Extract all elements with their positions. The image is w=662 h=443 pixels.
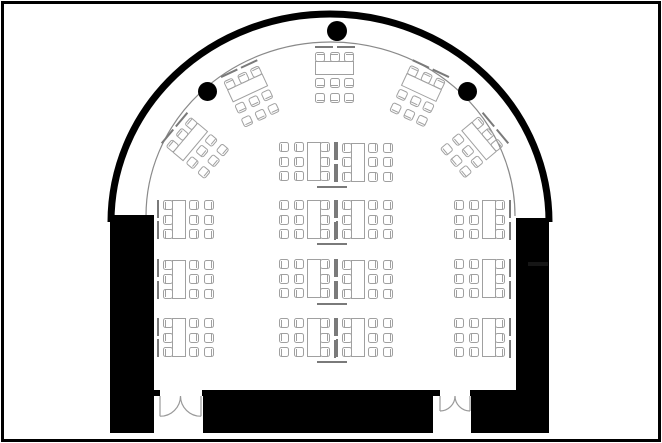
door-jamb: [202, 390, 210, 396]
divider-screen: [336, 318, 338, 336]
chair: [189, 200, 199, 210]
chair: [295, 274, 305, 284]
chair: [163, 215, 173, 225]
chair: [295, 289, 305, 299]
chair: [383, 172, 393, 182]
door-jamb: [470, 390, 478, 396]
chair: [368, 200, 378, 210]
chair: [279, 289, 289, 299]
workstation: [157, 318, 215, 358]
structural-column: [327, 21, 347, 41]
workstation: [315, 46, 355, 104]
divider-screen: [509, 222, 511, 240]
chair: [279, 260, 289, 270]
chair: [342, 347, 352, 357]
chair: [496, 229, 506, 239]
chair: [279, 318, 289, 328]
divider-screen: [509, 281, 511, 299]
chair: [279, 215, 289, 225]
chair: [342, 274, 352, 284]
chair: [295, 333, 305, 343]
chair: [279, 172, 289, 182]
floor-plan-canvas: [0, 0, 662, 443]
chair: [454, 318, 464, 328]
chair: [368, 289, 378, 299]
chair: [342, 215, 352, 225]
chair: [321, 318, 331, 328]
chair: [204, 347, 214, 357]
chair: [204, 229, 214, 239]
chair: [389, 102, 402, 115]
chair: [295, 143, 305, 153]
chair: [330, 52, 340, 62]
chair: [470, 289, 480, 299]
divider-screen: [336, 142, 338, 160]
divider-screen: [157, 281, 159, 299]
chair: [321, 260, 331, 270]
chair: [368, 260, 378, 270]
wall-recess-dash: [528, 262, 548, 266]
chair: [295, 318, 305, 328]
chair: [383, 200, 393, 210]
divider-screen: [157, 221, 159, 239]
chair: [295, 215, 305, 225]
chair: [321, 289, 331, 299]
chair: [383, 229, 393, 239]
chair: [345, 78, 355, 88]
chair: [189, 260, 199, 270]
chair: [204, 274, 214, 284]
chair: [204, 289, 214, 299]
workstation: [336, 200, 394, 240]
chair: [316, 52, 326, 62]
chair: [316, 93, 326, 103]
chair: [496, 333, 506, 343]
table: [351, 260, 365, 299]
chair: [368, 333, 378, 343]
table: [308, 260, 322, 299]
divider-screen: [157, 339, 159, 357]
chair: [204, 318, 214, 328]
chair: [496, 260, 506, 270]
chair: [345, 93, 355, 103]
floor-marker-line: [317, 361, 347, 363]
chair: [454, 260, 464, 270]
workstation: [157, 200, 215, 240]
chair: [342, 289, 352, 299]
workstation: [453, 259, 511, 299]
divider-screen: [336, 259, 338, 277]
chair: [321, 215, 331, 225]
left-wall: [110, 215, 154, 433]
chair: [454, 229, 464, 239]
chair: [279, 333, 289, 343]
chair: [279, 347, 289, 357]
divider-screen: [157, 259, 159, 277]
chair: [409, 94, 422, 107]
chair: [163, 318, 173, 328]
table: [308, 200, 322, 239]
chair: [189, 333, 199, 343]
divider-screen: [336, 200, 338, 218]
chair: [496, 274, 506, 284]
chair: [403, 108, 416, 121]
table: [172, 200, 186, 239]
chair: [470, 274, 480, 284]
chair: [342, 172, 352, 182]
workstation: [336, 259, 394, 299]
table: [351, 318, 365, 357]
chair: [330, 93, 340, 103]
divider-screen: [316, 46, 334, 48]
chair: [454, 200, 464, 210]
divider-screen: [509, 318, 511, 336]
chair: [383, 318, 393, 328]
chair: [316, 78, 326, 88]
chair: [204, 260, 214, 270]
door-jamb: [432, 390, 440, 396]
chair: [295, 200, 305, 210]
floor-marker-line: [317, 243, 347, 245]
chair: [345, 52, 355, 62]
chair: [383, 215, 393, 225]
divider-screen: [509, 340, 511, 358]
chair: [383, 157, 393, 167]
divider-screen: [509, 260, 511, 278]
divider-screen: [336, 221, 338, 239]
chair: [189, 215, 199, 225]
chair: [189, 229, 199, 239]
chair: [189, 274, 199, 284]
chair: [279, 274, 289, 284]
chair: [189, 347, 199, 357]
chair: [321, 157, 331, 167]
table: [483, 260, 497, 299]
chair: [295, 157, 305, 167]
workstation: [278, 259, 336, 299]
chair: [383, 333, 393, 343]
workstation: [453, 200, 511, 240]
chair: [383, 260, 393, 270]
chair: [470, 318, 480, 328]
divider-screen: [336, 281, 338, 299]
chair: [163, 289, 173, 299]
chair: [368, 172, 378, 182]
stage-block: [203, 390, 433, 433]
chair: [368, 215, 378, 225]
chair: [470, 229, 480, 239]
chair: [342, 143, 352, 153]
table: [172, 260, 186, 299]
divider-screen: [336, 339, 338, 357]
chair: [342, 318, 352, 328]
table: [172, 318, 186, 357]
chair: [496, 347, 506, 357]
chair: [368, 157, 378, 167]
chair: [368, 143, 378, 153]
chair: [368, 274, 378, 284]
chair: [321, 200, 331, 210]
door-swing: [440, 396, 470, 411]
chair: [234, 100, 247, 113]
table: [351, 200, 365, 239]
chair: [342, 229, 352, 239]
chair: [321, 143, 331, 153]
structural-column: [458, 82, 477, 101]
chair: [470, 200, 480, 210]
chair: [496, 200, 506, 210]
chair: [189, 318, 199, 328]
chair: [383, 143, 393, 153]
table: [308, 143, 322, 182]
chair: [470, 347, 480, 357]
chair: [368, 318, 378, 328]
divider-screen: [509, 200, 511, 218]
chair: [163, 200, 173, 210]
chair: [295, 172, 305, 182]
chair: [454, 274, 464, 284]
chair: [368, 229, 378, 239]
table: [316, 61, 355, 75]
table: [483, 318, 497, 357]
chair: [321, 333, 331, 343]
floor-marker-line: [317, 303, 347, 305]
workstation: [453, 318, 511, 358]
chair: [204, 200, 214, 210]
bottom-right-wall: [471, 390, 549, 433]
chair: [383, 274, 393, 284]
workstation: [336, 318, 394, 358]
chair: [342, 333, 352, 343]
chair: [204, 215, 214, 225]
chair: [279, 200, 289, 210]
table: [483, 200, 497, 239]
chair: [295, 229, 305, 239]
structural-column: [198, 82, 217, 101]
chair: [295, 347, 305, 357]
chair: [454, 333, 464, 343]
chair: [163, 274, 173, 284]
chair: [470, 333, 480, 343]
chair: [279, 157, 289, 167]
chair: [496, 215, 506, 225]
chair: [163, 260, 173, 270]
chair: [461, 144, 475, 158]
chair: [454, 347, 464, 357]
door-swing: [160, 396, 201, 416]
chair: [383, 347, 393, 357]
chair: [454, 215, 464, 225]
chair: [321, 229, 331, 239]
workstation: [278, 142, 336, 182]
chair: [279, 143, 289, 153]
chair: [383, 289, 393, 299]
chair: [163, 229, 173, 239]
chair: [163, 347, 173, 357]
chair: [321, 172, 331, 182]
chair: [189, 289, 199, 299]
chair: [368, 347, 378, 357]
floor-marker-line: [317, 186, 347, 188]
chair: [248, 94, 261, 107]
chair: [496, 289, 506, 299]
chair: [321, 274, 331, 284]
door-jamb: [150, 390, 160, 396]
chair: [204, 333, 214, 343]
divider-screen: [337, 46, 355, 48]
divider-screen: [157, 200, 159, 218]
divider-screen: [336, 164, 338, 182]
chair: [163, 333, 173, 343]
chair: [330, 78, 340, 88]
chair: [396, 88, 409, 101]
chair: [342, 200, 352, 210]
chair: [195, 144, 209, 158]
chair: [279, 229, 289, 239]
chair: [496, 318, 506, 328]
chair: [470, 260, 480, 270]
workstation: [278, 200, 336, 240]
chair: [321, 347, 331, 357]
chair: [295, 260, 305, 270]
table: [351, 143, 365, 182]
divider-screen: [157, 318, 159, 336]
chair: [342, 260, 352, 270]
workstation: [336, 142, 394, 182]
workstation: [278, 318, 336, 358]
chair: [454, 289, 464, 299]
chair: [342, 157, 352, 167]
table: [308, 318, 322, 357]
workstation: [157, 259, 215, 299]
chair: [470, 215, 480, 225]
